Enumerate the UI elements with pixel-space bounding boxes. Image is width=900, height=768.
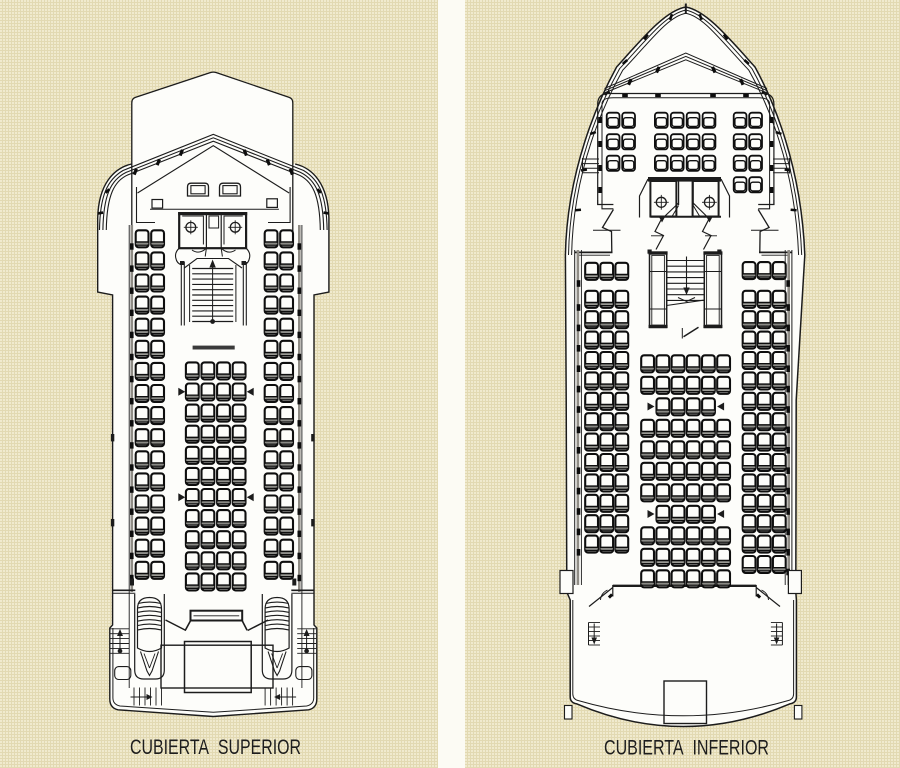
svg-text:CUBIERTA SUPERIOR: CUBIERTA SUPERIOR <box>130 736 301 759</box>
svg-text:CUBIERTA INFERIOR: CUBIERTA INFERIOR <box>604 737 769 760</box>
